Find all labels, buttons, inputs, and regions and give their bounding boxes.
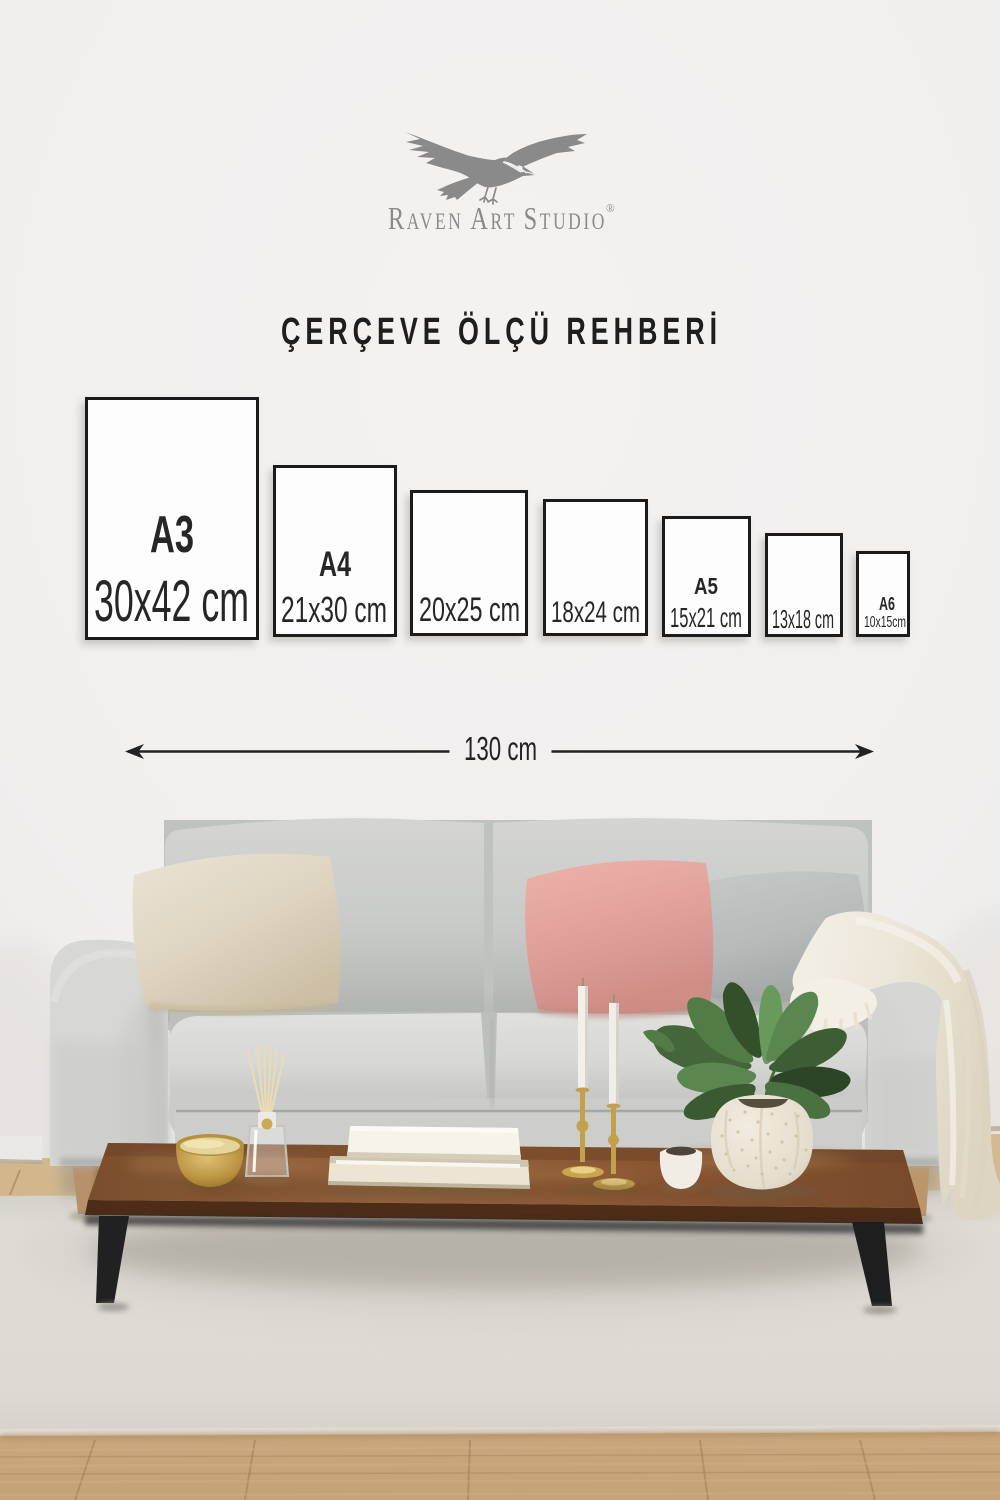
svg-text:ÇERÇEVE ÖLÇÜ REHBERİ: ÇERÇEVE ÖLÇÜ REHBERİ bbox=[281, 310, 722, 353]
svg-text:A4: A4 bbox=[319, 545, 351, 584]
svg-text:15x21 cm: 15x21 cm bbox=[670, 602, 742, 633]
svg-text:A3: A3 bbox=[150, 506, 194, 564]
svg-text:A6: A6 bbox=[879, 594, 895, 614]
svg-text:10x15cm: 10x15cm bbox=[864, 614, 906, 631]
svg-text:21x30 cm: 21x30 cm bbox=[281, 589, 387, 630]
svg-text:30x42 cm: 30x42 cm bbox=[94, 569, 249, 634]
svg-text:®: ® bbox=[606, 203, 615, 215]
svg-text:13x18 cm: 13x18 cm bbox=[772, 604, 834, 634]
svg-text:18x24 cm: 18x24 cm bbox=[551, 596, 640, 629]
svg-text:RAVEN ART STUDIO: RAVEN ART STUDIO bbox=[388, 200, 607, 236]
svg-text:130 cm: 130 cm bbox=[464, 730, 537, 767]
svg-text:A5: A5 bbox=[694, 573, 718, 599]
svg-text:20x25 cm: 20x25 cm bbox=[419, 591, 520, 629]
